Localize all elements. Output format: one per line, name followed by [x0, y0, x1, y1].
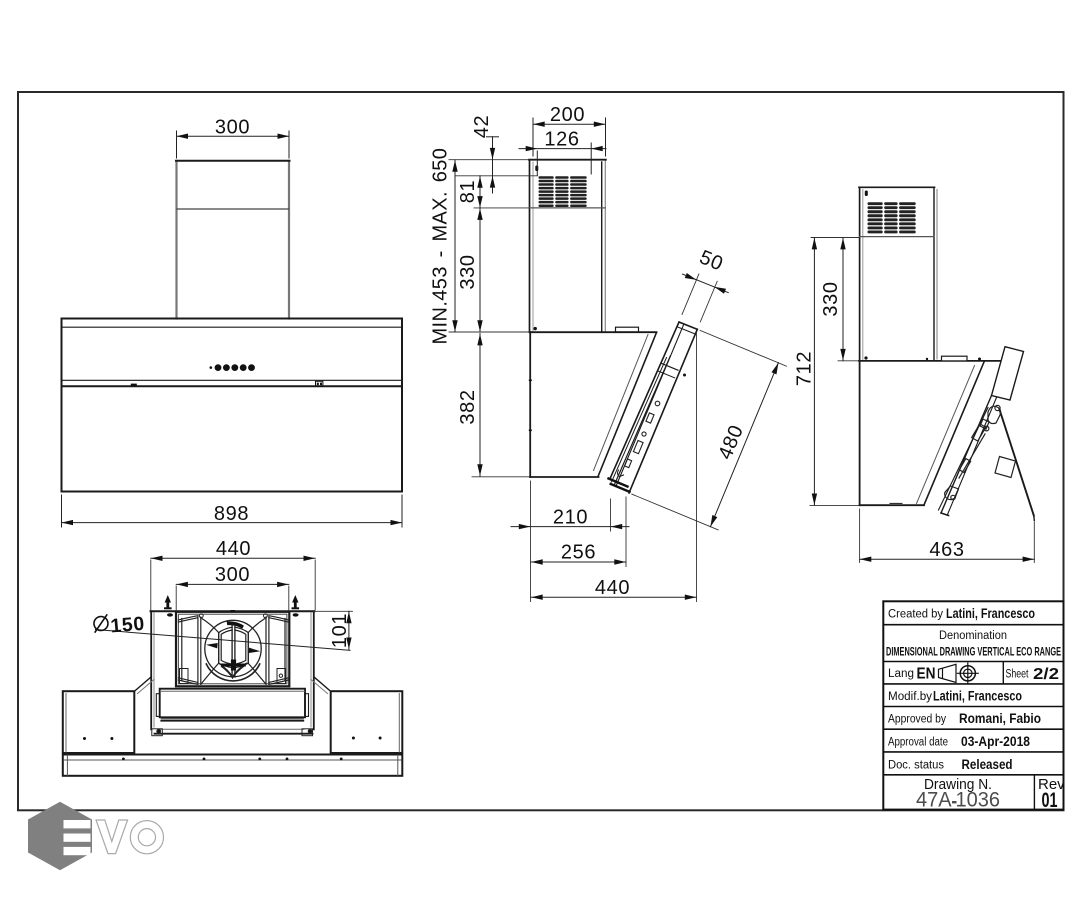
svg-text:712: 712: [794, 351, 816, 386]
svg-text:Denomination: Denomination: [939, 630, 1007, 642]
svg-text:Romani, Fabio: Romani, Fabio: [959, 711, 1041, 726]
svg-text:101: 101: [329, 613, 351, 648]
svg-text:330: 330: [457, 254, 479, 289]
svg-text:81: 81: [457, 180, 479, 203]
svg-text:Created by: Created by: [888, 609, 943, 621]
svg-text:150: 150: [110, 613, 146, 638]
svg-text:Latini, Francesco: Latini, Francesco: [946, 606, 1035, 621]
svg-text:Doc. status: Doc. status: [888, 760, 944, 772]
svg-text:42: 42: [471, 115, 493, 138]
svg-text:330: 330: [820, 281, 842, 316]
svg-text:Released: Released: [962, 757, 1013, 772]
svg-text:EN: EN: [917, 666, 936, 683]
svg-text:480: 480: [714, 422, 748, 463]
svg-text:300: 300: [215, 117, 250, 139]
svg-text:DIMENSIONAL DRAWING VERTICAL E: DIMENSIONAL DRAWING VERTICAL ECO RANGE: [886, 645, 1061, 659]
svg-text:50: 50: [696, 246, 726, 275]
svg-text:210: 210: [553, 506, 588, 528]
svg-text:01: 01: [1042, 788, 1058, 812]
svg-text:Lang: Lang: [888, 668, 914, 680]
svg-text:440: 440: [216, 538, 251, 560]
svg-text:Modif.by: Modif.by: [888, 691, 932, 703]
svg-text:382: 382: [457, 389, 479, 424]
svg-text:126: 126: [544, 129, 579, 151]
svg-text:256: 256: [561, 541, 596, 563]
svg-text:Sheet: Sheet: [1006, 669, 1030, 681]
svg-text:300: 300: [215, 564, 250, 586]
svg-text:Latini, Francesco: Latini, Francesco: [933, 689, 1022, 704]
svg-text:47A 1036: 47A 1036: [916, 788, 1000, 812]
svg-text:Approved by: Approved by: [888, 714, 946, 726]
svg-text:463: 463: [929, 539, 964, 561]
svg-text:03-Apr-2018: 03-Apr-2018: [961, 734, 1030, 749]
svg-text:Approval date: Approval date: [888, 737, 948, 749]
svg-text:440: 440: [595, 577, 630, 599]
svg-text:898: 898: [214, 503, 249, 525]
svg-text:200: 200: [550, 104, 585, 126]
svg-text:2/2: 2/2: [1033, 666, 1059, 683]
svg-text:MIN.453 - MAX. 650: MIN.453 - MAX. 650: [430, 148, 452, 345]
